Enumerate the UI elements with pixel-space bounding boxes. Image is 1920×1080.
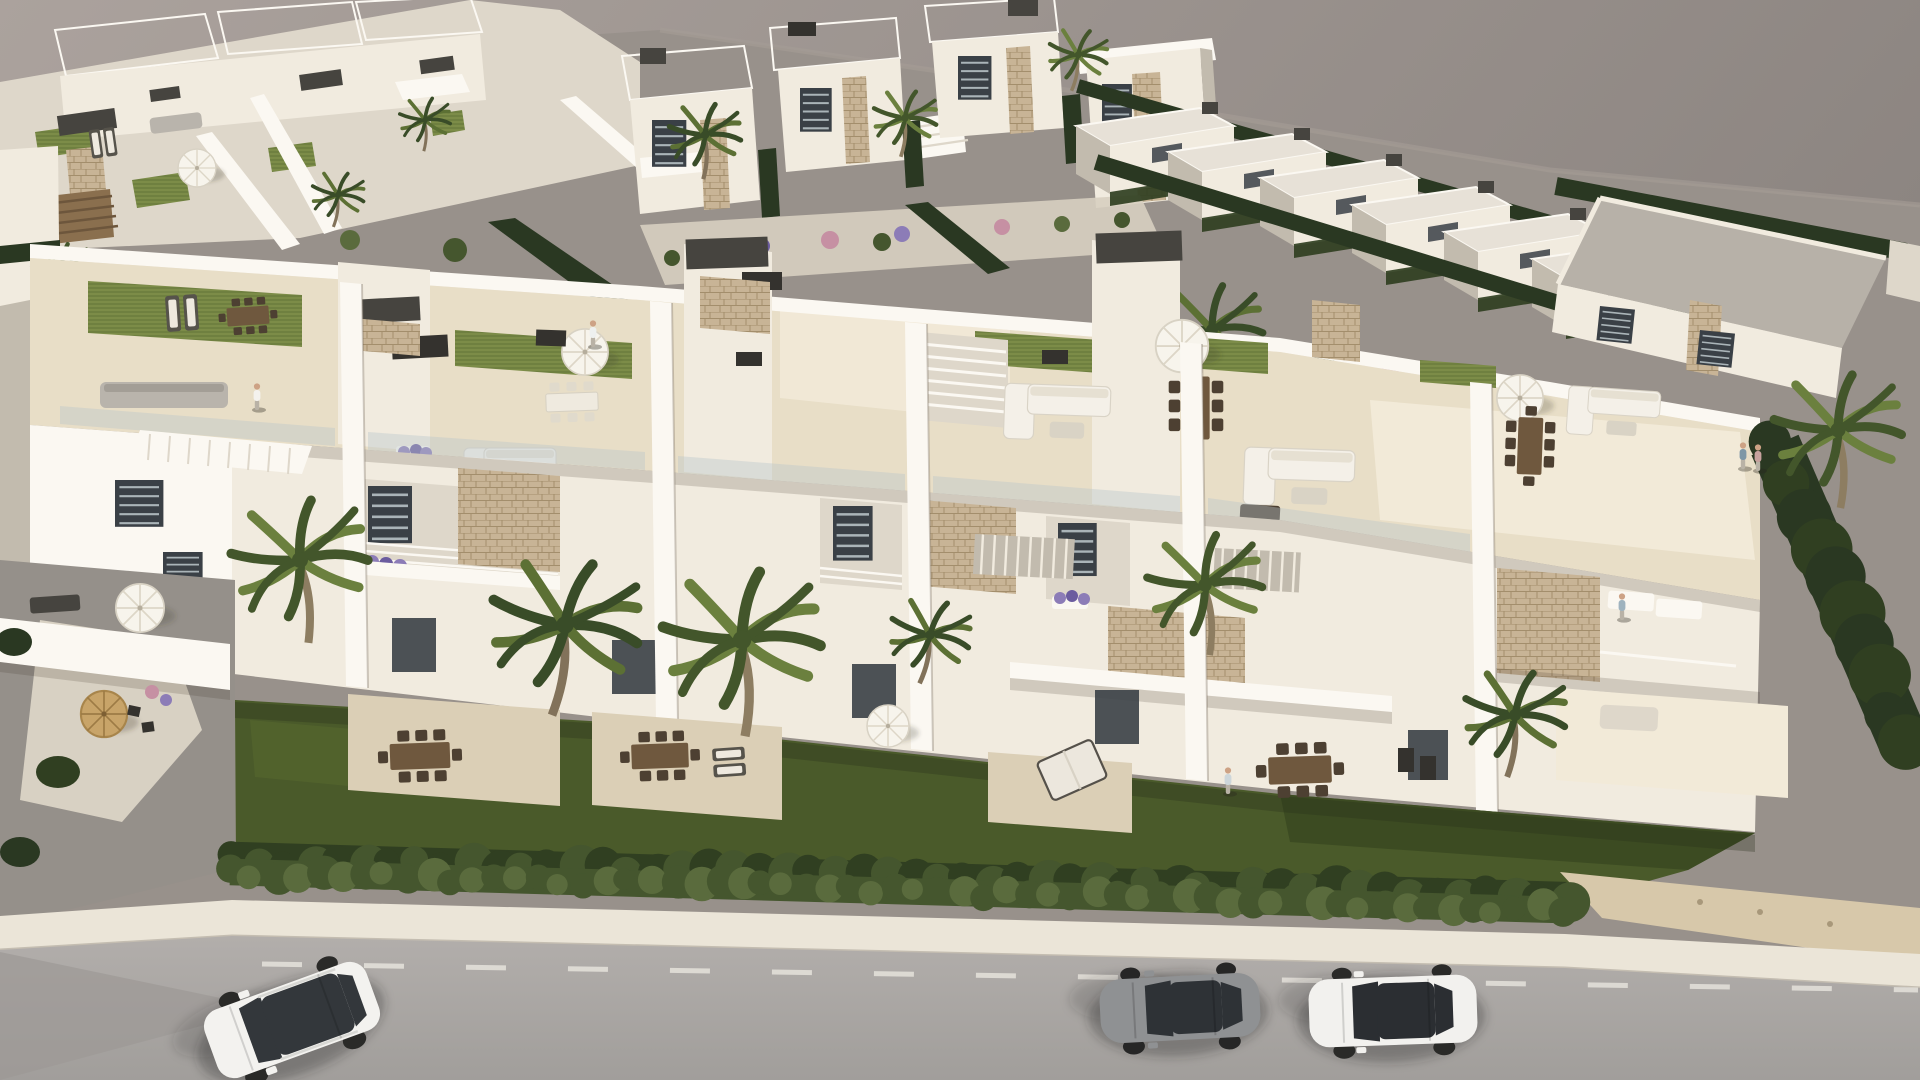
balcony-unit3 (820, 498, 902, 590)
stair-tower-2 (684, 237, 782, 480)
roof-stairs (920, 332, 1008, 428)
render-canvas (0, 0, 1920, 1080)
